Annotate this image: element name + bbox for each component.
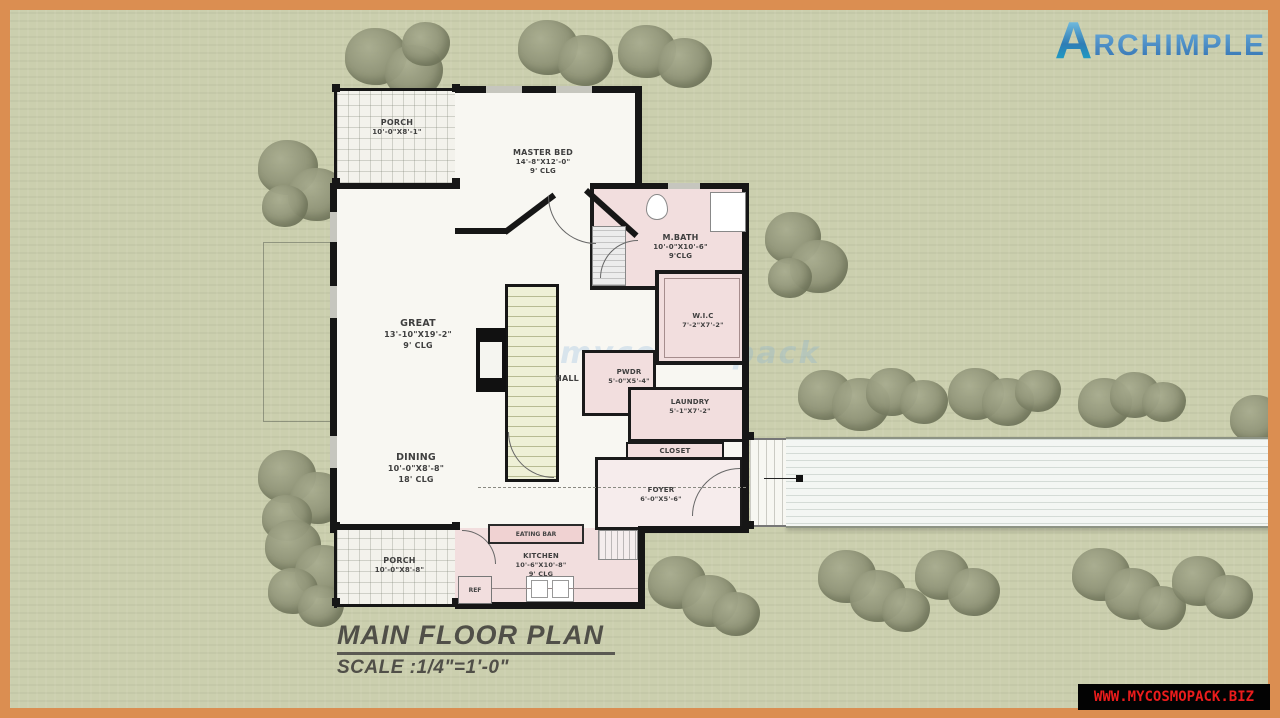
- wall: [455, 228, 507, 234]
- wall: [638, 528, 645, 608]
- frame-border-left: [0, 0, 10, 718]
- room-label-porch-top: PORCH 10'-0"X8'-1": [347, 118, 447, 137]
- window: [486, 86, 522, 93]
- wall: [334, 88, 337, 186]
- wall: [334, 88, 458, 91]
- title-block: MAIN FLOOR PLAN SCALE :1/4"=1'-0": [337, 620, 615, 679]
- plan-scale: SCALE :1/4"=1'-0": [337, 657, 615, 679]
- room-label-kitchen: KITCHEN 10'-6"X10'-8" 9' CLG: [498, 552, 584, 578]
- tree: [1142, 382, 1186, 422]
- tree: [768, 258, 812, 298]
- room-label-foyer: FOYER 6'-0"X5'-6": [628, 486, 694, 504]
- porch-post: [332, 178, 340, 186]
- bathroom-vanity: [710, 192, 746, 232]
- tree: [712, 592, 760, 636]
- window: [330, 286, 337, 318]
- tree: [262, 185, 308, 227]
- wall: [334, 183, 460, 189]
- tree: [658, 38, 712, 88]
- room-label-dining: DINING 10'-0"X8'-8" 18' CLG: [362, 452, 470, 485]
- room-label-laundry: LAUNDRY 5'-1"X7'-2": [652, 398, 728, 416]
- porch-post: [332, 84, 340, 92]
- eating-bar: EATING BAR: [488, 524, 584, 544]
- room-label-pwdr: PWDR 5'-0"X5'-4": [598, 368, 660, 386]
- floor-plan-image: mycosmopack PORCH 10'-0"X8'-1" MASTER BE…: [0, 0, 1280, 718]
- window: [330, 436, 337, 468]
- window: [556, 86, 592, 93]
- logo-text: RCHIMPLE: [1093, 29, 1266, 63]
- window: [668, 183, 700, 189]
- room-label-hall: HALL: [545, 374, 589, 384]
- wall: [635, 86, 642, 188]
- site-watermark: WWW.MYCOSMOPACK.BIZ: [1078, 684, 1270, 710]
- room-label-master-bath: M.BATH 10'-0"X10'-6" 9'CLG: [628, 233, 733, 262]
- pantry-shelves: [598, 530, 638, 560]
- wall: [455, 86, 641, 93]
- room-label-master-bed: MASTER BED 14'-8"X12'-0" 9' CLG: [487, 148, 599, 177]
- frame-border-right: [1268, 0, 1280, 718]
- porch-post: [452, 178, 460, 186]
- tree: [1015, 370, 1061, 412]
- sink-basin: [552, 580, 569, 598]
- patio-outline: [263, 242, 333, 422]
- wall: [334, 524, 460, 530]
- refrigerator: REF: [458, 576, 492, 604]
- porch-post: [452, 522, 460, 530]
- porch-post: [452, 84, 460, 92]
- entry-arrow-dot: [796, 475, 803, 482]
- tree: [882, 588, 930, 632]
- tree: [402, 22, 450, 66]
- room-label-porch-bottom: PORCH 10'-0"X8'-8": [352, 556, 447, 575]
- archimple-logo: A RCHIMPLE: [1055, 18, 1266, 65]
- wall: [334, 604, 458, 607]
- porch-post: [332, 522, 340, 530]
- stoop-post: [746, 432, 754, 440]
- frame-border-top: [0, 0, 1280, 10]
- tree: [1205, 575, 1253, 619]
- room-label-great: GREAT 13'-10"X19'-2" 9' CLG: [362, 318, 474, 351]
- roof-dash-line: [478, 487, 746, 488]
- entry-arrow-line: [764, 478, 798, 479]
- plan-title: MAIN FLOOR PLAN: [337, 620, 615, 655]
- room-label-wic: W.I.C 7'-2"X7'-2": [678, 312, 728, 330]
- logo-a-icon: A: [1055, 18, 1093, 65]
- fireplace-opening: [480, 342, 502, 378]
- driveway: [786, 437, 1280, 528]
- tree: [558, 35, 613, 86]
- porch-post: [332, 598, 340, 606]
- tree: [948, 568, 1000, 616]
- sink-basin: [531, 580, 548, 598]
- wall: [742, 183, 749, 533]
- wall: [638, 526, 749, 533]
- window: [330, 212, 337, 242]
- stoop-post: [746, 521, 754, 529]
- tree: [900, 380, 948, 424]
- entry-walk: [750, 438, 786, 527]
- wall: [334, 524, 337, 608]
- toilet: [646, 194, 668, 220]
- room-label-closet: CLOSET: [640, 447, 710, 456]
